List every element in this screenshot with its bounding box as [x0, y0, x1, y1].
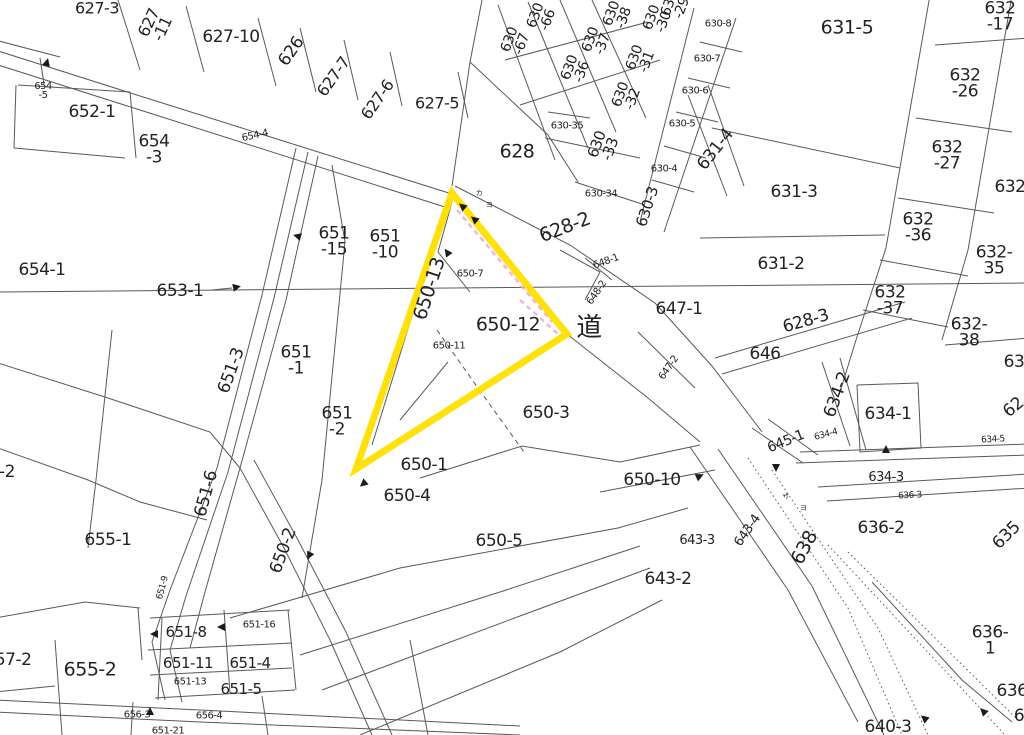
parcel-label-6: 6	[1014, 709, 1024, 725]
parcel-label-634-1: 634-1	[865, 407, 912, 423]
survey-arrow-icon	[772, 464, 780, 472]
parcel-label-630-7: 630-7	[694, 54, 721, 63]
parcel-label-63: 63	[1004, 355, 1024, 371]
parcel-label-634-5: 634-5	[981, 435, 1005, 444]
parcel-label-653-1: 653-1	[157, 284, 204, 300]
parcel-label-631-3: 631-3	[771, 185, 818, 201]
parcel-label-634-3: 634-3	[868, 472, 903, 484]
parcel-label-651--1: 651 -1	[281, 345, 312, 376]
cadastral-map: 627-3627 -11627-10626627-7627-6627-5654 …	[0, 0, 1024, 735]
parcel-label-636-2: 636-2	[858, 521, 905, 537]
parcel-label-651--15: 651 -15	[319, 226, 350, 257]
parcel-label-651-21: 651-21	[152, 726, 184, 735]
parcel-label-650-1: 650-1	[401, 458, 448, 474]
parcel-label-ヨ: ヨ	[486, 202, 493, 208]
parcel-label-657-2: 657-2	[0, 653, 31, 669]
parcel-label-630-4: 630-4	[651, 164, 678, 173]
parcel-label-ヨ: ヨ	[800, 505, 807, 511]
parcel-label-628: 628	[500, 143, 535, 160]
parcel-label-サ: サ	[782, 493, 790, 501]
survey-arrow-icon	[217, 623, 225, 631]
parcel-label-636-1: 636-1	[972, 625, 1009, 656]
parcel-label-636-3: 636-3	[898, 491, 922, 500]
parcel-label-632-35: 632-35	[976, 245, 1013, 276]
parcel-label-636: 636	[997, 684, 1024, 700]
parcel-label-651-8: 651-8	[165, 626, 206, 640]
parcel-boundary-lines	[0, 0, 1024, 735]
parcel-label-651--10: 651 -10	[370, 229, 401, 260]
parcel-label-640-3: 640-3	[865, 720, 912, 735]
parcel-label-631-5: 631-5	[821, 19, 874, 36]
parcel-label-650-4: 650-4	[384, 489, 431, 505]
parcel-label-630-34: 630-34	[585, 189, 617, 198]
parcel-label-631-2: 631-2	[758, 257, 805, 273]
parcel-label-655-2: 655-2	[64, 661, 117, 678]
survey-arrow-icon	[882, 445, 890, 453]
parcel-label-道: 道	[576, 317, 602, 341]
parcel-label-632--17: 632 -17	[985, 1, 1016, 32]
parcel-label-652-1: 652-1	[69, 105, 116, 121]
parcel-label-630-8: 630-8	[705, 19, 732, 28]
parcel-label-646: 646	[750, 347, 781, 363]
survey-arrow-icon	[146, 707, 154, 715]
parcel-label-630-5: 630-5	[669, 119, 696, 128]
parcel-label-627-10: 627-10	[202, 30, 259, 46]
parcel-label-632: 632	[995, 180, 1024, 196]
parcel-label-632--37: 632 -37	[875, 285, 906, 316]
parcel-label-650-7: 650-7	[457, 269, 484, 278]
parcel-label-632--27: 632 -27	[932, 140, 963, 171]
parcel-label-654--5: 654 -5	[34, 82, 52, 100]
parcel-label-650-3: 650-3	[523, 406, 570, 422]
parcel-label-627-3: 627-3	[75, 2, 119, 17]
parcel-label-630-35: 630-35	[551, 121, 583, 130]
parcel-label-630-6: 630-6	[682, 86, 709, 95]
parcel-label-643-3: 643-3	[679, 535, 714, 547]
parcel-label-632--36: 632 -36	[903, 212, 934, 243]
parcel-label-651--2: 651 -2	[322, 406, 353, 437]
parcel-label-カ: カ	[476, 190, 483, 196]
parcel-label-632-38: 632-38	[942, 317, 997, 348]
survey-arrow-icon	[232, 282, 241, 291]
parcel-label-643-2: 643-2	[645, 572, 692, 588]
parcel-label-650-10: 650-10	[623, 473, 680, 489]
parcel-label--2: -2	[0, 465, 15, 481]
parcel-label-650-5: 650-5	[476, 534, 523, 550]
parcel-label-650-11: 650-11	[433, 341, 465, 350]
parcel-label-651-4: 651-4	[229, 657, 270, 671]
parcel-label-647-1: 647-1	[656, 302, 703, 318]
parcel-label-651-16: 651-16	[243, 620, 275, 629]
parcel-label-656-4: 656-4	[196, 711, 223, 720]
parcel-label-651-13: 651-13	[174, 677, 206, 686]
survey-arrow-icon	[150, 630, 158, 638]
parcel-label-627-5: 627-5	[415, 97, 459, 112]
parcel-label-651-11: 651-11	[163, 657, 213, 671]
parcel-label-654-1: 654-1	[19, 263, 66, 279]
parcel-label-655-1: 655-1	[85, 533, 132, 549]
parcel-label-651-5: 651-5	[220, 683, 261, 697]
parcel-label-650-12: 650-12	[476, 316, 540, 333]
parcel-label-632--26: 632 -26	[950, 68, 981, 99]
parcel-label-654--3: 654 -3	[139, 134, 170, 165]
